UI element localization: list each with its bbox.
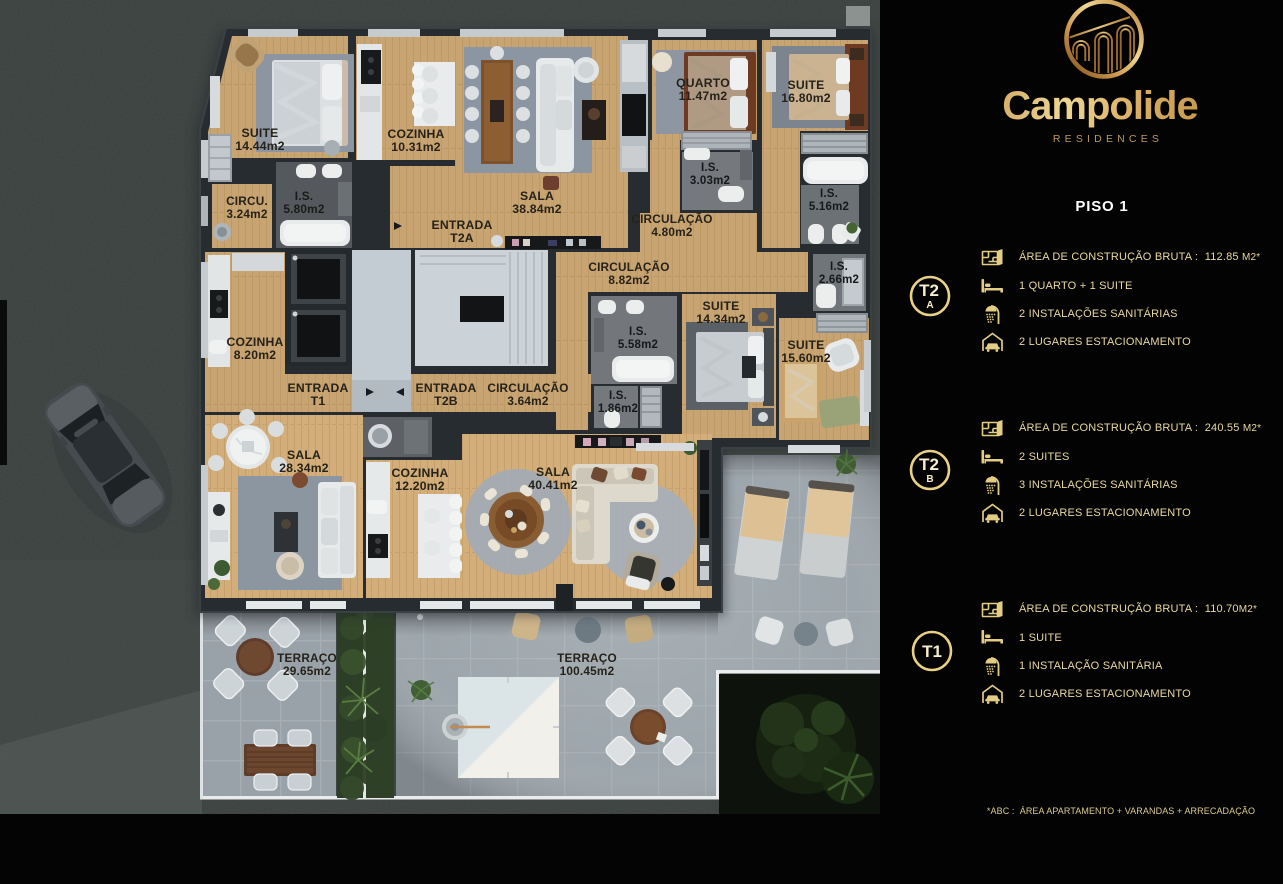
svg-text:T1: T1: [922, 642, 942, 661]
svg-text:T2: T2: [919, 455, 939, 474]
svg-text:T2: T2: [919, 281, 939, 300]
svg-text:A: A: [926, 300, 933, 311]
svg-text:B: B: [926, 474, 933, 485]
